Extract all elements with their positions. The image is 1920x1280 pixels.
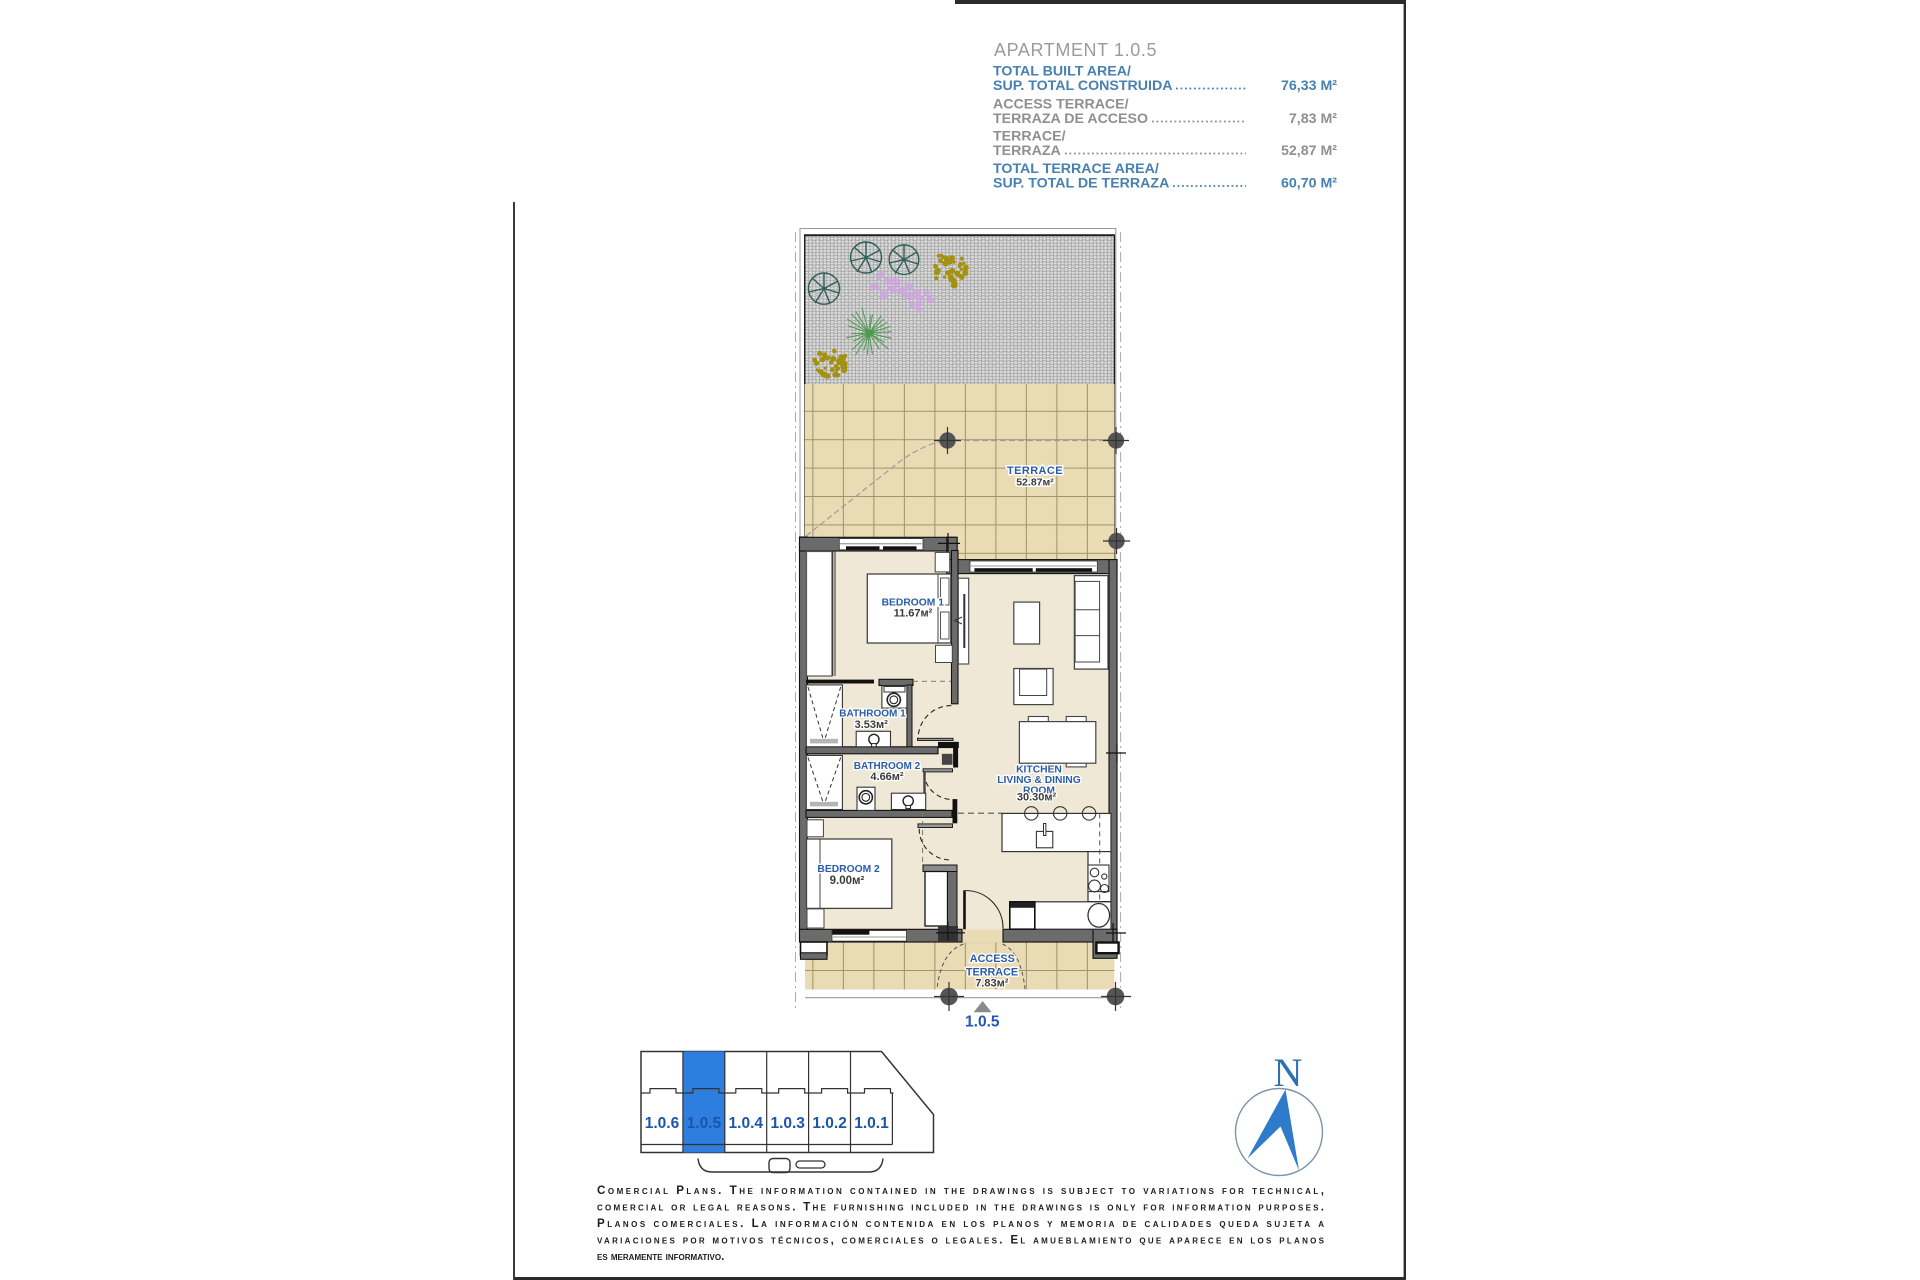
svg-text:TERRACE: TERRACE <box>1007 465 1063 477</box>
svg-text:1.0.1: 1.0.1 <box>854 1115 889 1132</box>
svg-text:1.0.6: 1.0.6 <box>645 1115 680 1132</box>
svg-text:TERRAZA: TERRAZA <box>993 143 1061 159</box>
svg-text:1.0.5: 1.0.5 <box>687 1115 722 1132</box>
svg-text:BATHROOM 1: BATHROOM 1 <box>839 709 906 720</box>
svg-text:SUP. TOTAL CONSTRUIDA: SUP. TOTAL CONSTRUIDA <box>993 78 1172 94</box>
svg-text:variaciones por motivos técnic: variaciones por motivos técnicos, comerc… <box>597 1234 1325 1247</box>
svg-text:SUP. TOTAL DE TERRAZA: SUP. TOTAL DE TERRAZA <box>993 176 1169 192</box>
svg-text:11.67м²: 11.67м² <box>894 608 933 620</box>
svg-text:52.87м²: 52.87м² <box>1016 477 1054 489</box>
svg-text:1.0.4: 1.0.4 <box>729 1115 764 1132</box>
svg-text:KITCHEN: KITCHEN <box>1016 765 1062 776</box>
svg-text:7,83 M²: 7,83 M² <box>1289 111 1337 127</box>
svg-text:1.0.2: 1.0.2 <box>812 1115 846 1132</box>
svg-text:30.30м²: 30.30м² <box>1017 792 1057 804</box>
svg-text:BEDROOM 2: BEDROOM 2 <box>817 864 880 875</box>
svg-text:APARTMENT 1.0.5: APARTMENT 1.0.5 <box>994 40 1157 60</box>
svg-text:3.53м²: 3.53м² <box>855 719 889 731</box>
svg-text:1.0.5: 1.0.5 <box>965 1014 1000 1031</box>
svg-text:7.83м²: 7.83м² <box>975 978 1009 990</box>
svg-text:es meramente informativo.: es meramente informativo. <box>597 1250 724 1263</box>
svg-text:Planos comerciales. La informa: Planos comerciales. La información conte… <box>597 1217 1324 1230</box>
svg-text:ACCESS: ACCESS <box>970 953 1015 965</box>
svg-text:60,70 M²: 60,70 M² <box>1281 176 1337 192</box>
svg-text:4.66м²: 4.66м² <box>870 771 904 783</box>
svg-text:52,87 M²: 52,87 M² <box>1281 143 1337 159</box>
svg-text:TERRAZA DE ACCESO: TERRAZA DE ACCESO <box>993 111 1148 127</box>
svg-text:76,33 M²: 76,33 M² <box>1281 78 1337 94</box>
svg-text:LIVING & DINING: LIVING & DINING <box>997 775 1081 786</box>
svg-text:1.0.3: 1.0.3 <box>770 1115 805 1132</box>
svg-text:9.00м²: 9.00м² <box>830 875 865 887</box>
